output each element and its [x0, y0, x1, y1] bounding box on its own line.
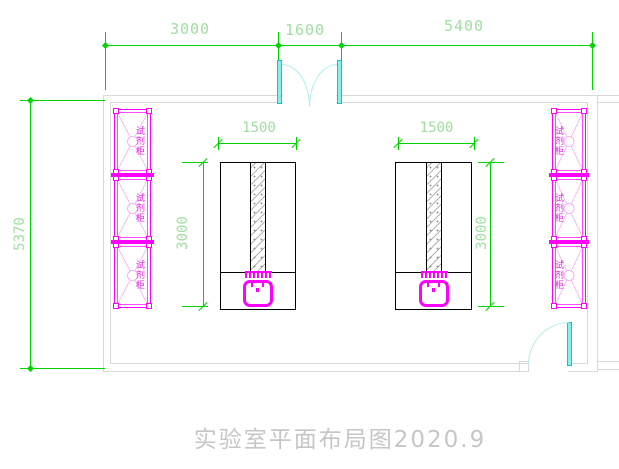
bench-left-grille [245, 271, 272, 278]
reagent-cabinet-label: 试剂柜 [134, 260, 144, 290]
sink-icon-left [243, 280, 273, 307]
wall-stub-bottom-right-outer [597, 369, 619, 370]
dim-arrow [275, 42, 282, 49]
dim-label-1600: 1600 [275, 22, 335, 38]
dim-arrow [589, 42, 596, 49]
dim-line-top [105, 45, 593, 46]
cabinet-junction-bar [111, 240, 154, 244]
reagent-cabinet-label: 试剂柜 [553, 260, 563, 290]
dim-label-bench-right-3000: 3000 [474, 203, 490, 263]
sink-left-faucet-tick [251, 281, 253, 287]
reagent-cabinet [113, 175, 152, 246]
dim-label-3000: 3000 [155, 21, 225, 37]
door-swing-arc-right [309, 64, 337, 107]
door-swing-arc-left [282, 64, 310, 107]
drawing-title: 实验室平面布局图2020.9 [120, 420, 560, 454]
cabinet-junction-bar [549, 240, 589, 244]
sink-icon-right [419, 280, 449, 307]
sink-right-faucet-tick [427, 281, 429, 287]
reagent-cabinet-label: 试剂柜 [553, 193, 563, 223]
wall-stub-bottom-right-inner [597, 361, 619, 362]
dim-line-bench-left-width [218, 143, 297, 144]
reagent-cabinet [113, 242, 152, 313]
dim-label-bench-right-1500: 1500 [398, 120, 475, 136]
wall-stub-top-right-outer [597, 95, 619, 96]
reagent-cabinet-label: 试剂柜 [134, 193, 144, 223]
dim-line-left [30, 100, 31, 369]
bench-right-center-strip [426, 163, 442, 273]
sink-left-faucet-tick [262, 281, 264, 287]
dim-line-bench-right-width [398, 143, 475, 144]
dim-label-5400: 5400 [429, 18, 499, 34]
dim-arrow [102, 42, 109, 49]
dim-arrow [27, 365, 34, 372]
dim-line-bench-left-depth [203, 162, 204, 307]
floor-plan-canvas: 试剂柜 试剂柜 试剂柜 [0, 0, 619, 469]
dim-extension-line [182, 162, 208, 163]
sink-left-drain [256, 288, 259, 292]
bench-right-grille [421, 271, 448, 278]
bench-left-center-strip [250, 163, 266, 273]
sink-right-faucet-tick [438, 281, 440, 287]
dim-extension-line [182, 306, 208, 307]
cabinet-junction-bar [549, 173, 589, 177]
reagent-cabinet-label: 试剂柜 [553, 126, 563, 156]
dim-label-5370: 5370 [12, 204, 28, 264]
reagent-cabinet [113, 108, 152, 179]
dim-arrow [27, 97, 34, 104]
dim-label-bench-left-1500: 1500 [222, 120, 296, 136]
dim-line-bench-right-depth [490, 162, 491, 307]
dim-arrow [338, 42, 345, 49]
dim-label-bench-left-3000: 3000 [175, 203, 191, 263]
reagent-cabinet-label: 试剂柜 [134, 126, 144, 156]
double-door-leaf-right [337, 60, 342, 104]
wall-stub-top-right-inner [597, 102, 619, 103]
sink-right-drain [432, 288, 435, 292]
cabinet-junction-bar [111, 173, 154, 177]
